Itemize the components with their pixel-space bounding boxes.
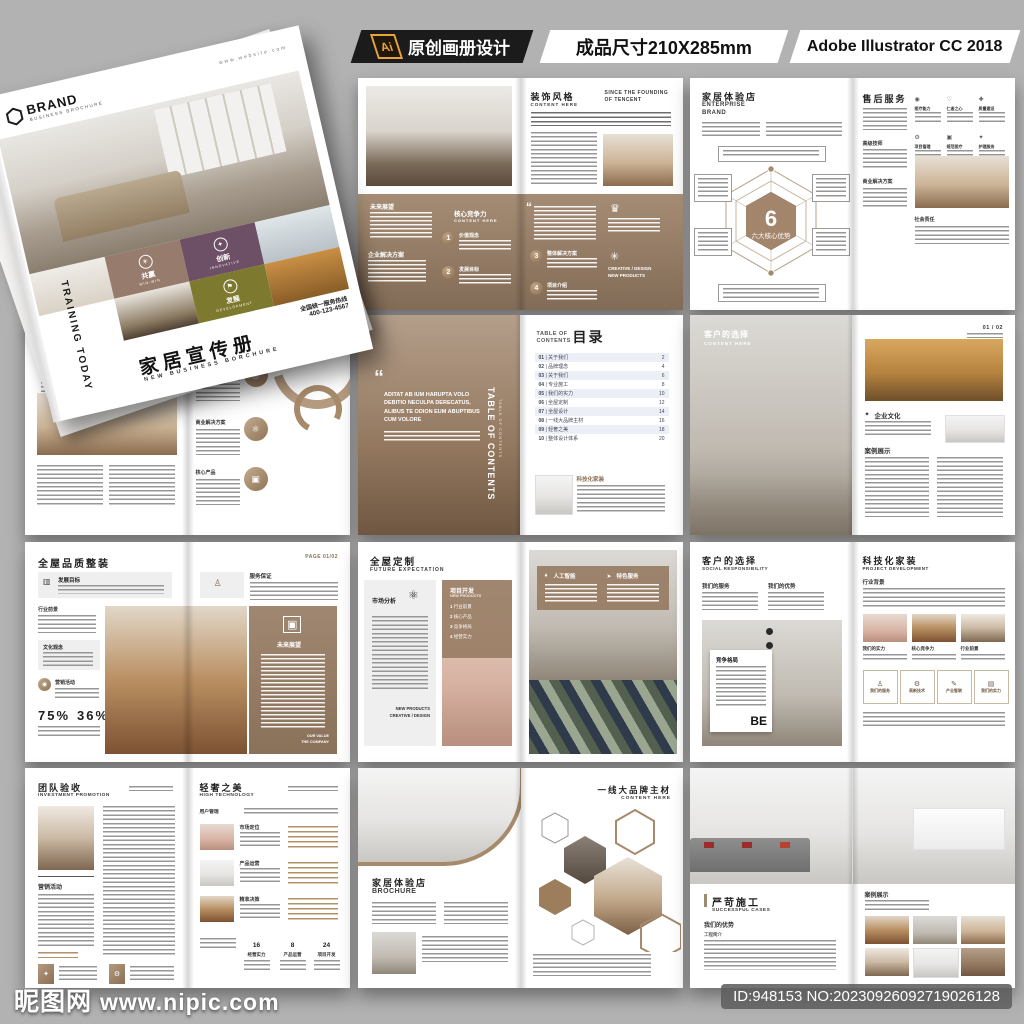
text-lines <box>863 712 1005 728</box>
case-photo-3 <box>961 614 1005 642</box>
brand-hexagon-icon <box>4 106 26 128</box>
page-title: 一线大品牌主材 <box>597 784 671 796</box>
page-subtitle: CONTENT HERE <box>621 796 671 801</box>
row2-photo <box>200 860 234 886</box>
develop-icon: ⚑ <box>221 278 238 295</box>
stat-3: 24项目开发 <box>314 934 340 972</box>
stat-75: 75% <box>38 708 70 723</box>
band-label2: 特色服务 <box>617 572 639 580</box>
text-lines <box>200 938 236 950</box>
red-pillow <box>704 842 714 848</box>
callout-top <box>718 146 826 162</box>
section-label-2: 商业解决方案 <box>863 178 893 185</box>
caption-1: 我们的实力 <box>863 646 886 652</box>
loft-curved-photo <box>358 768 521 866</box>
win-icon: ☀ <box>137 253 154 270</box>
text-lines <box>865 457 929 517</box>
project-overlay: 项目开发 NEW PRODUCTS 1 行业前景 2 核心产品 3 竞争格局 4… <box>442 580 512 658</box>
cases-left-page: 严苛施工 SUCCESSFUL CASES 我们的优势 工程简介 <box>690 768 853 988</box>
subtitle-line2: BRAND <box>702 110 726 116</box>
quote-mark: “ <box>526 200 532 214</box>
header-size: 成品尺寸210X285mm <box>540 30 789 63</box>
page-subtitle: PROJECT DEVELOPMENT <box>863 566 929 571</box>
trophy-icon: ♛ <box>610 202 620 215</box>
text-lines <box>38 894 94 948</box>
brown-band: 未来展望 企业解决方案 核心竞争力 CONTENT HERE 1 价值观念 2 … <box>358 194 683 310</box>
choice-right-page: 01 / 02 ✦ 企业文化 案例展示 <box>853 315 1016 535</box>
marketing-label: 营销活动 <box>38 882 62 891</box>
caption-2: 核心竞争力 <box>912 646 935 652</box>
text-lines <box>372 902 436 924</box>
watermark-site: 昵图网 www.nipic.com <box>14 982 280 1018</box>
industry-label: 行业背景 <box>863 578 885 586</box>
toc-list: 01 | 关于我们2 02 | 品牌理念4 03 | 关于我们6 04 | 专业… <box>535 353 669 443</box>
text-lines <box>531 132 597 184</box>
page-subtitle: INVESTMENT PROMOTION <box>38 793 110 798</box>
team-right-page: 轻奢之美 HIGH TECHNOLOGY 用户管理 市场定位 产品运营 精准决策… <box>188 768 351 988</box>
band-label1: 人工智能 <box>554 572 576 580</box>
caption-3: 行业前景 <box>961 646 979 652</box>
cases-label: 案例展示 <box>865 890 889 899</box>
intro-label: 工程简介 <box>704 932 722 938</box>
header-app: Adobe Illustrator CC 2018 <box>790 30 1021 63</box>
text-lines <box>130 966 174 980</box>
note-line2: OF TENCENT <box>605 97 642 103</box>
text-lines <box>459 274 511 286</box>
text-lines <box>863 108 907 130</box>
project-sub: NEW PRODUCTS <box>450 594 481 598</box>
hexagon-collage <box>525 802 681 952</box>
text-lines <box>129 786 173 791</box>
goal-box: ▥ 发展目标 <box>38 572 172 598</box>
page-subtitle: CONTENT HERE <box>531 102 579 107</box>
toc-left-page: “ ADITAT AB IUM HARUPTA VOLO DEBITIO NEC… <box>358 315 521 535</box>
text-lines <box>863 188 907 208</box>
side-title-small: TABLE OF CONTENTS <box>498 399 503 479</box>
website-url: www.website.com <box>219 45 288 67</box>
molecule-icon: ⚛ <box>408 588 419 602</box>
cases-right-page: 案例展示 <box>853 768 1016 988</box>
text-lines <box>547 258 597 270</box>
service-label: 服务保证 <box>250 572 272 580</box>
spread-cases: 严苛施工 SUCCESSFUL CASES 我们的优势 工程简介 案例展示 <box>690 768 1015 988</box>
rocket-icon: ➤ <box>607 573 612 580</box>
callout-bottom <box>718 284 826 302</box>
text-lines <box>244 808 338 816</box>
text-lines <box>577 485 665 513</box>
stairs-photo <box>38 806 94 870</box>
spread-team: 团队验收 INVESTMENT PROMOTION 营销活动 ✦ ⚙ 轻奢之美 … <box>25 768 350 988</box>
text-lines <box>865 900 929 910</box>
band-solution-label: 企业解决方案 <box>368 250 404 259</box>
header-badge: Ai 原创画册设计 <box>351 30 534 63</box>
geometric-carpet-photo <box>529 680 677 754</box>
text-lines <box>368 260 426 282</box>
creative-label2: NEW PRODUCTS <box>608 273 645 278</box>
text-lines <box>534 206 596 240</box>
header-title: 原创画册设计 <box>408 34 510 59</box>
feature-box-3: ✎产业智联 <box>937 670 972 704</box>
text-lines <box>37 465 103 505</box>
feature-band: ♦ 人工智能 ➤ 特色服务 <box>537 566 669 610</box>
bedroom-photo <box>366 86 512 186</box>
section-label-3: 社会责任 <box>915 216 935 223</box>
culture-label: 企业文化 <box>875 410 901 420</box>
text-lines <box>768 592 824 610</box>
text-lines <box>937 457 1003 517</box>
callout-left-top <box>694 174 732 202</box>
team-left-page: 团队验收 INVESTMENT PROMOTION 营销活动 ✦ ⚙ <box>25 768 188 988</box>
page-number: 01 / 02 <box>983 325 1003 331</box>
col1-label: 我们的服务 <box>702 582 730 590</box>
wardrobe-photo <box>865 339 1003 401</box>
number-4-badge: 4 <box>530 282 543 295</box>
text-lines <box>863 654 907 662</box>
text-lines <box>38 726 100 738</box>
kitchen-photo <box>915 156 1009 208</box>
section-label-1: 高级技师 <box>863 140 883 147</box>
text-lines <box>38 615 96 633</box>
text-lines <box>384 431 480 441</box>
text-lines <box>370 212 432 238</box>
text-lines <box>863 588 1005 608</box>
page-label: PAGE 01/02 <box>305 554 338 560</box>
bars-brown <box>288 826 338 848</box>
text-lines <box>961 654 1005 662</box>
text-lines <box>55 688 99 700</box>
spread-social: 客户的选择 SOCIAL RESPONSIBILITY 我们的服务 我们的优势 … <box>690 542 1015 762</box>
item4-label: 项目介绍 <box>547 282 567 289</box>
row1-label: 市场定位 <box>240 824 260 831</box>
note-line1: SINCE THE FOUNDING <box>605 90 669 96</box>
callout-right-top <box>812 174 850 202</box>
marketing-icon: ◉ <box>38 678 51 691</box>
case-photo-4 <box>865 948 909 976</box>
page-title: 严苛施工 <box>712 894 760 909</box>
size-label: 成品尺寸210X285mm <box>576 34 752 60</box>
marketing-label: 营销活动 <box>55 679 75 686</box>
hex-left-page: 家居体验店 BROCHURE <box>358 768 521 988</box>
culture-box: 文化观念 <box>38 640 100 670</box>
hex-right-page: 一线大品牌主材 CONTENT HERE <box>521 768 684 988</box>
toc-en-1: TABLE OF <box>537 331 568 337</box>
toc-en-2: CONTENTS <box>537 338 571 344</box>
text-lines <box>250 582 338 600</box>
custom-right-page: ♦ 人工智能 ➤ 特色服务 <box>521 542 684 762</box>
adobe-ai-icon: Ai <box>370 34 403 59</box>
photo-shade <box>690 475 852 535</box>
callout-left-bottom <box>694 228 732 256</box>
spread-toc: “ ADITAT AB IUM HARUPTA VOLO DEBITIO NEC… <box>358 315 683 535</box>
page-subtitle: FUTURE EXPECTATION <box>370 567 444 573</box>
page-title: 客户的选择 <box>704 329 749 340</box>
text-lines <box>967 333 1003 338</box>
spread-hex: 家居体验店 BROCHURE 一线大品牌主材 CONTENT HERE <box>358 768 683 988</box>
case-photo-1 <box>863 614 907 642</box>
app-label: Adobe Illustrator CC 2018 <box>807 38 1003 56</box>
stat-1: 16经营实力 <box>244 934 270 972</box>
display-icon: ▣ <box>244 467 268 491</box>
page-subtitle: SOCIAL RESPONSIBILITY <box>702 566 768 571</box>
person-icon: ♙ <box>214 578 222 589</box>
text-lines <box>912 654 956 662</box>
text-lines <box>704 940 836 970</box>
watermark-id-badge: ID:948153 NO:20230926092719026128 <box>721 984 1012 1009</box>
pen-icon: ✎ <box>951 680 957 688</box>
text-lines <box>766 122 842 138</box>
text-lines <box>702 122 760 138</box>
text-lines <box>240 832 280 848</box>
text-lines <box>422 936 508 962</box>
text-lines <box>547 290 597 302</box>
creative-label1: CREATIVE / DESIGN <box>608 266 651 271</box>
item2-label: 发展目标 <box>459 266 479 273</box>
number-3-badge: 3 <box>530 250 543 263</box>
spread-quality: 全屋品质整装 ▥ 发展目标 行业前景 文化观念 ◉ 营销活动 75% 36% P… <box>25 542 350 762</box>
advantage-label: 我们的优势 <box>704 920 734 929</box>
culture-label: 文化观念 <box>43 644 63 651</box>
case-photo-3 <box>961 916 1005 944</box>
sofa-shape <box>53 170 190 242</box>
panel-foot1: OUR VALUE <box>307 734 329 738</box>
panel-en2: CREATIVE / DESIGN <box>390 713 430 718</box>
text-lines <box>109 465 175 505</box>
text-lines <box>863 149 907 169</box>
panel-en1: NEW PRODUCTS <box>396 706 430 711</box>
market-label: 市场分析 <box>372 596 396 605</box>
title-bar <box>704 894 707 907</box>
row2-label: 商业解决方案 <box>196 419 226 426</box>
brand-right-page: 售后服务 高级技师 商业解决方案 ◉医疗能力 ♡仁者之心 ✚质量建设 ⚙项目管理… <box>853 78 1016 310</box>
center-label: 六大核心优势 <box>752 231 792 240</box>
pin-icon: ♦ <box>545 573 548 579</box>
text-lines <box>240 868 280 884</box>
text-lines <box>240 904 280 920</box>
card-big-text: BE <box>750 714 767 728</box>
spread-choice: 客户的选择 CONTENT HERE 01 / 02 ✦ 企业文化 案例展示 <box>690 315 1015 535</box>
text-lines <box>915 226 1009 244</box>
choice-left-page: 客户的选择 CONTENT HERE <box>690 315 853 535</box>
spread-custom: 全屋定制 FUTURE EXPECTATION 市场分析 ⚛ NEW PRODU… <box>358 542 683 762</box>
vision-panel: ▣ 未来展望 OUR VALUE THE COMPANY <box>249 606 337 754</box>
text-lines <box>702 592 758 610</box>
social-left-page: 客户的选择 SOCIAL RESPONSIBILITY 我们的服务 我们的优势 … <box>690 542 853 762</box>
page-subtitle: BROCHURE <box>372 888 416 895</box>
cases-label: 案例展示 <box>865 445 891 455</box>
sofa-thumb-photo <box>945 415 1005 443</box>
red-pillow <box>780 842 790 848</box>
feature-box-1: ♙我们的服务 <box>863 670 898 704</box>
pattern-card: 竞争格局 BE <box>710 650 772 732</box>
toc-thumb-photo <box>535 475 573 515</box>
text-lines <box>459 240 511 252</box>
brand-left-page: 家居体验店 ENTERPRISE BRAND 6 六大核心优势 <box>690 78 853 310</box>
thumb-photo <box>372 932 416 974</box>
text-lines <box>531 112 671 126</box>
page-subtitle: CONTENT HERE <box>704 341 752 346</box>
feature-box-4: ▤我们的实力 <box>974 670 1009 704</box>
service-icon-grid: ◉医疗能力 ♡仁者之心 ✚质量建设 ⚙项目管理 ▣规范医疗 ✦护理服务 <box>915 88 1009 152</box>
text-lines <box>196 429 240 455</box>
market-panel: 市场分析 ⚛ NEW PRODUCTS CREATIVE / DESIGN <box>364 580 436 746</box>
item1-label: 价值观念 <box>459 232 479 239</box>
gem-icon-box: ⚙ <box>109 964 125 984</box>
number-1-badge: 1 <box>442 232 455 245</box>
divider <box>38 876 94 877</box>
page-subtitle: SUCCESSFUL CASES <box>712 908 770 913</box>
center-number: 6 <box>765 206 777 231</box>
spread-brand: 家居体验店 ENTERPRISE BRAND 6 六大核心优势 <box>690 78 1015 310</box>
case-photo-1 <box>865 916 909 944</box>
page-title: 售后服务 <box>863 92 907 105</box>
text-lines-brown <box>38 952 78 958</box>
row2-label: 产品运营 <box>240 860 260 867</box>
stat-2: 8产品运营 <box>280 934 306 972</box>
case-photo-2 <box>913 916 957 944</box>
vision-label: 未来展望 <box>277 640 301 649</box>
page-subtitle: HIGH TECHNOLOGY <box>200 793 255 798</box>
row3-photo <box>200 896 234 922</box>
custom-left-page: 全屋定制 FUTURE EXPECTATION 市场分析 ⚛ NEW PRODU… <box>358 542 521 762</box>
side-title: TABLE OF CONTENTS <box>486 387 496 507</box>
industry-label: 行业前景 <box>38 606 58 613</box>
panel-foot2: THE COMPANY <box>301 740 329 744</box>
item3-label: 整体解决方案 <box>547 250 577 257</box>
bars-brown <box>288 862 338 884</box>
row3-label: 精准决策 <box>240 896 260 903</box>
number-2-badge: 2 <box>442 266 455 279</box>
kitchen-cabinets <box>913 808 1005 850</box>
dot-decoration <box>766 642 773 649</box>
creative-icon: ✳ <box>610 250 619 263</box>
callout-right-bottom <box>812 228 850 256</box>
band-future-label: 未来展望 <box>370 202 394 211</box>
kitchen-photo <box>603 134 673 186</box>
row1-photo <box>200 824 234 850</box>
text-lines <box>608 218 660 234</box>
toc-blurb-title: 科技化家装 <box>577 475 605 483</box>
quote-text: ADITAT AB IUM HARUPTA VOLO DEBITIO NECUL… <box>384 391 480 424</box>
text-lines <box>533 954 651 976</box>
case-photo-5 <box>913 948 959 978</box>
person-icon: ♙ <box>877 680 883 688</box>
text-lines <box>196 479 240 505</box>
toc-right-page: TABLE OF CONTENTS 目录 01 | 关于我们2 02 | 品牌理… <box>521 315 684 535</box>
core-subtitle: CONTENT HERE <box>454 218 498 223</box>
text-lines <box>103 806 175 956</box>
book-icon: ▤ <box>988 680 995 688</box>
monitor-icon: ▣ <box>283 616 301 633</box>
text-lines <box>59 966 97 980</box>
subtitle-line1: ENTERPRISE <box>702 102 745 108</box>
doc-icon: ▥ <box>43 577 51 586</box>
gear-icon: ⚙ <box>914 680 920 688</box>
text-lines <box>288 786 338 791</box>
bookshelf-shape <box>154 83 287 178</box>
bars-brown <box>288 898 338 920</box>
page-title: 全屋品质整装 <box>38 555 110 570</box>
case-photo-6 <box>961 948 1005 976</box>
case-photo-2 <box>912 614 956 642</box>
text-lines <box>865 421 931 437</box>
toc-title: 目录 <box>573 327 605 347</box>
text-lines <box>444 902 508 924</box>
wood-bedroom-photo <box>105 606 247 754</box>
quote-mark: “ <box>374 367 384 390</box>
spread-style: 装饰风格 CONTENT HERE SINCE THE FOUNDING OF … <box>358 78 683 310</box>
feature-box-2: ⚙高新技术 <box>900 670 935 704</box>
network-icon: ⚛ <box>244 417 268 441</box>
star-icon: ✦ <box>865 411 870 418</box>
dot-decoration <box>766 628 773 635</box>
goal-label: 发展目标 <box>58 576 80 584</box>
page-title: 全屋定制 <box>370 554 416 568</box>
card-label: 竞争格局 <box>716 656 738 664</box>
innovate-icon: ✦ <box>212 236 229 253</box>
col2-label: 我们的优势 <box>768 582 796 590</box>
top-label: 用户管理 <box>200 808 219 815</box>
red-pillow <box>742 842 752 848</box>
row3-label: 核心产品 <box>196 469 216 476</box>
social-right-page: 科技化家装 PROJECT DEVELOPMENT 行业背景 我们的实力 核心竞… <box>853 542 1016 762</box>
service-icon-box: ♙ <box>200 572 244 598</box>
wifi-icon-box: ✦ <box>38 964 54 984</box>
core-title: 核心竞争力 <box>454 208 487 218</box>
